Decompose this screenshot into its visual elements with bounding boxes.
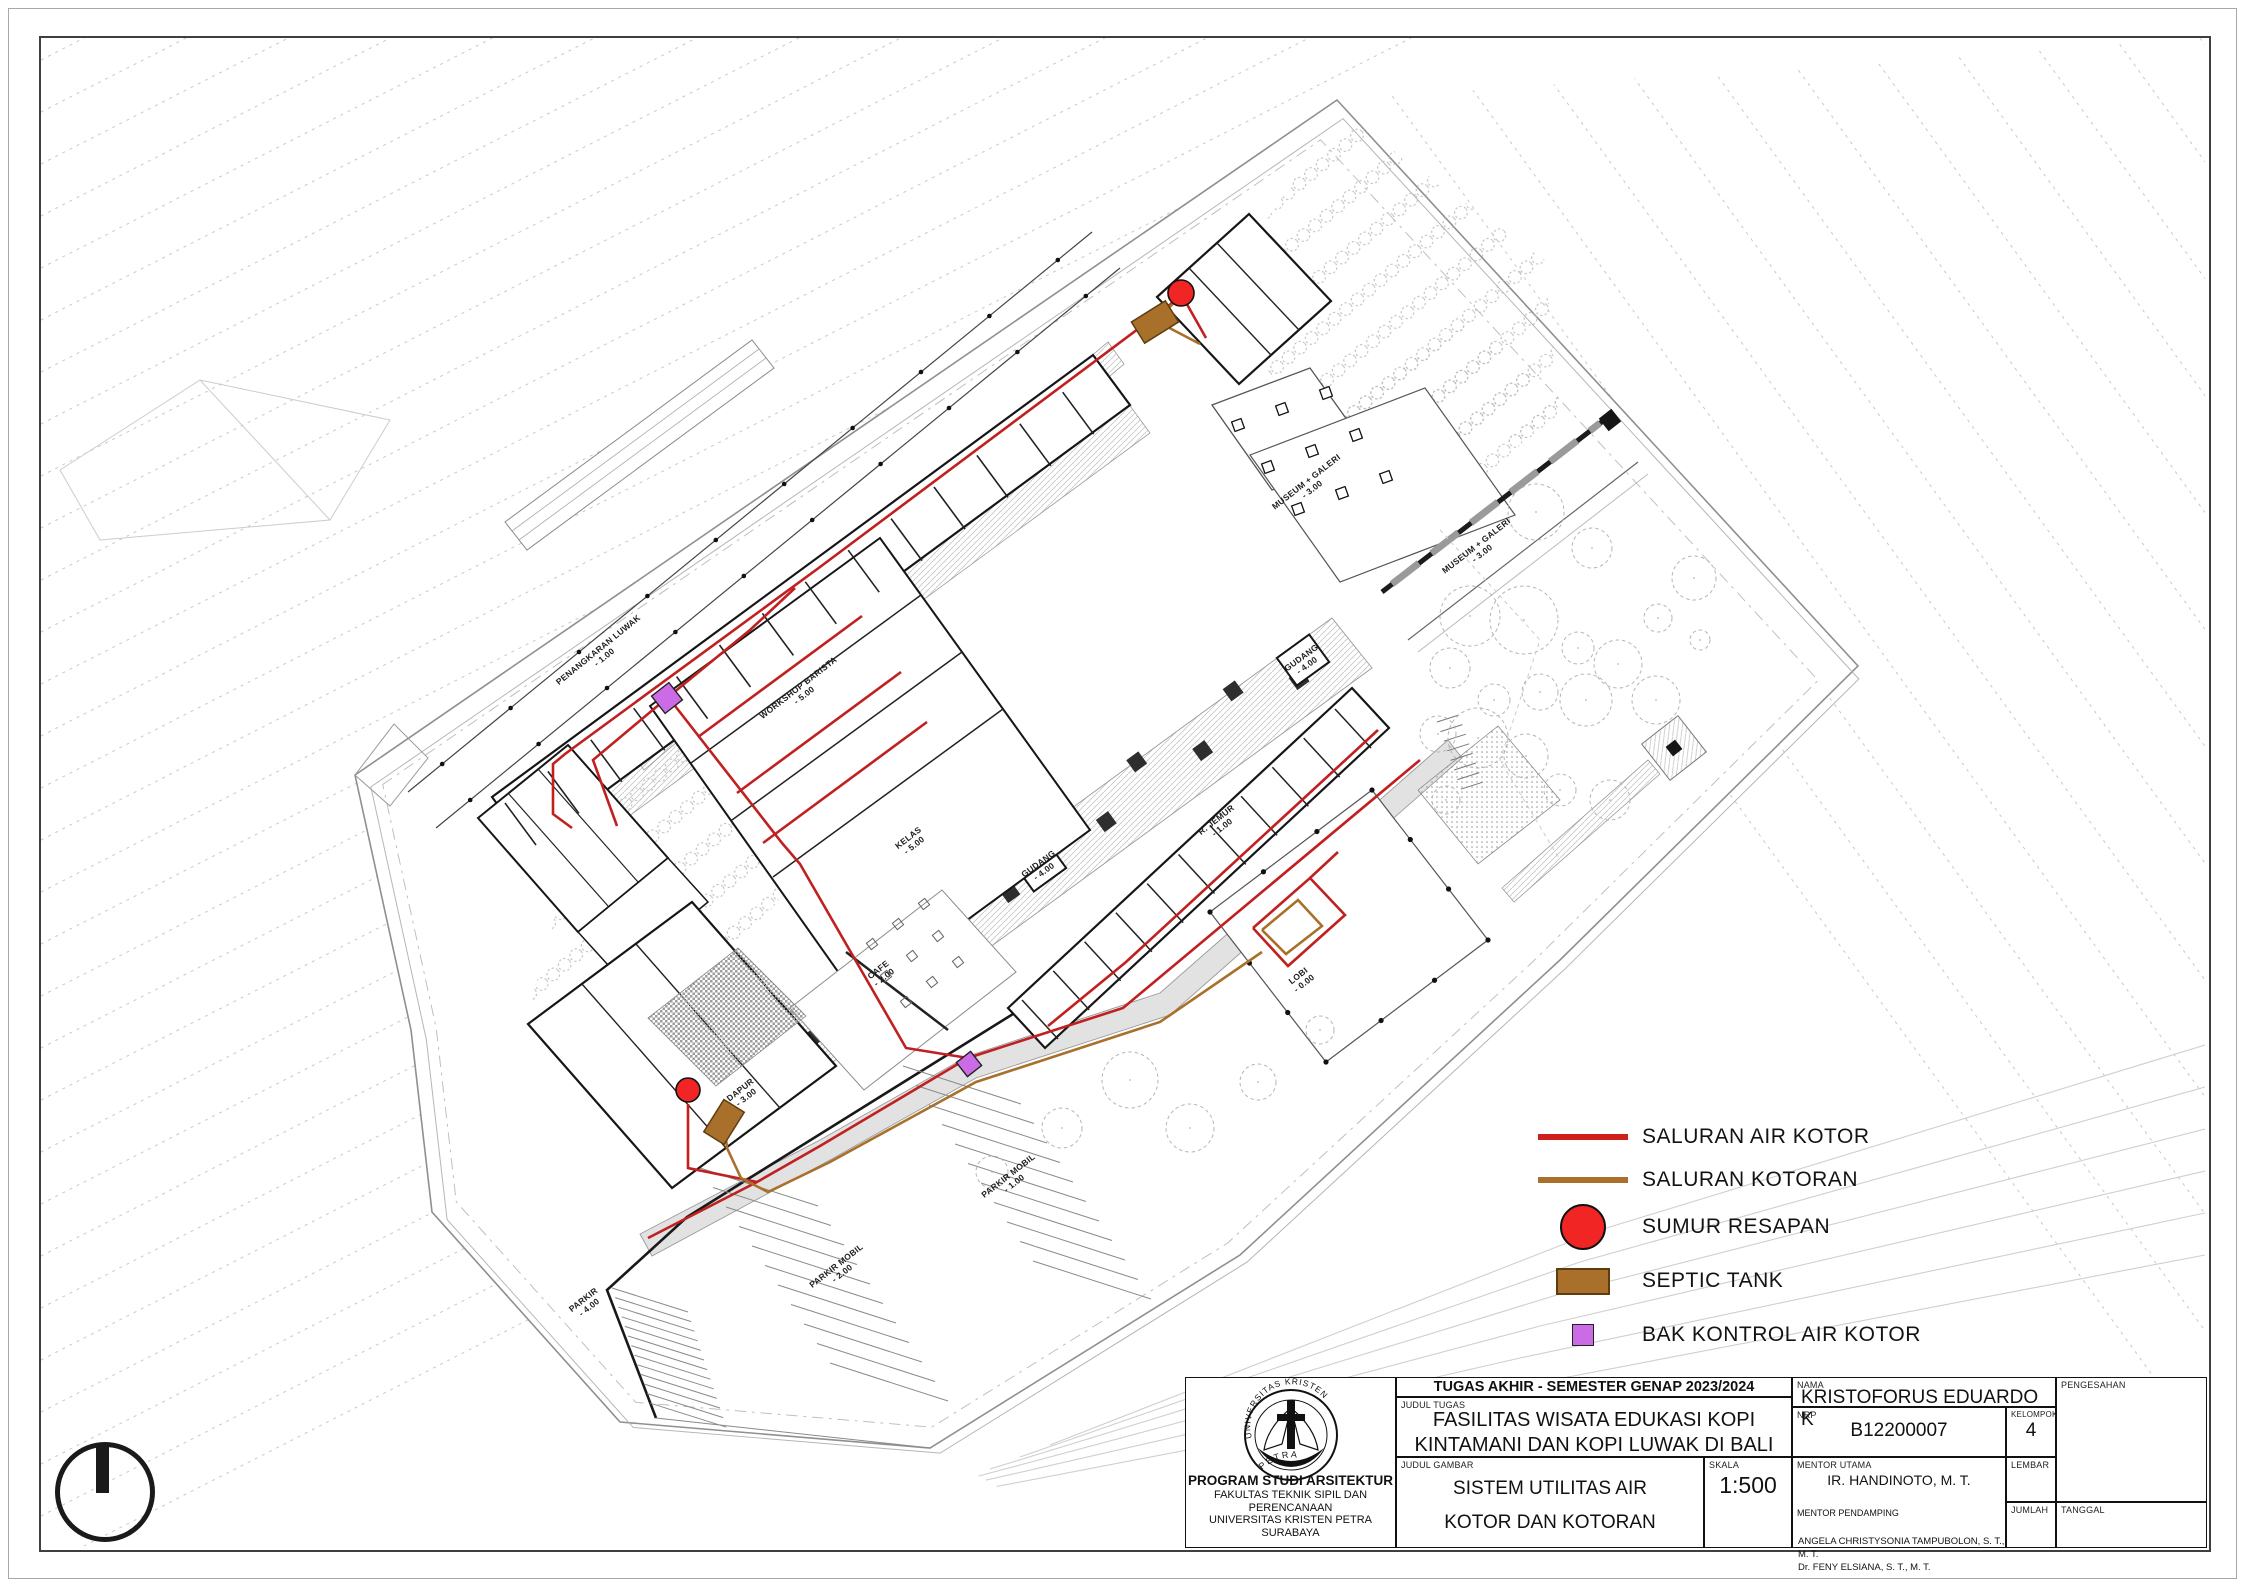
skala-cell: SKALA 1:500: [1704, 1457, 1792, 1548]
judul-tugas-cell: JUDUL TUGAS FASILITAS WISATA EDUKASI KOP…: [1396, 1397, 1792, 1457]
city-name: SURABAYA: [1186, 1527, 1395, 1540]
legend-row: SEPTIC TANK: [1530, 1269, 1783, 1293]
lembar-label: LEMBAR: [2011, 1460, 2049, 1470]
north-arrow: [55, 1442, 155, 1542]
assignment-header-text: TUGAS AKHIR - SEMESTER GENAP 2023/2024: [1434, 1379, 1755, 1395]
tanggal-cell: TANGGAL: [2056, 1502, 2207, 1548]
nama-label: NAMA: [1797, 1380, 1824, 1390]
assignment-header: TUGAS AKHIR - SEMESTER GENAP 2023/2024: [1396, 1377, 1792, 1397]
judul-tugas-line1: FASILITAS WISATA EDUKASI KOPI: [1397, 1408, 1791, 1433]
judul-gambar-cell: JUDUL GAMBAR SISTEM UTILITAS AIR KOTOR D…: [1396, 1457, 1704, 1548]
skala-label: SKALA: [1709, 1460, 1739, 1470]
mentor-pendamping-label: MENTOR PENDAMPING: [1797, 1508, 1899, 1518]
title-block: UNIVERSITAS KRISTEN PETRA PROGRAM STUDI …: [1185, 1377, 2207, 1548]
legend-row: BAK KONTROL AIR KOTOR: [1530, 1324, 1921, 1346]
bak-kontrol-swatch: [1572, 1324, 1594, 1346]
faculty-name: FAKULTAS TEKNIK SIPIL DAN PERENCANAAN: [1186, 1489, 1395, 1514]
kelompok-label: KELOMPOK: [2011, 1410, 2058, 1419]
judul-tugas-label: JUDUL TUGAS: [1401, 1400, 1465, 1410]
petra-logo: UNIVERSITAS KRISTEN PETRA: [1186, 1378, 1397, 1488]
pengesahan-label: PENGESAHAN: [2061, 1380, 2126, 1390]
mentor-utama-value: IR. HANDINOTO, M. T.: [1793, 1472, 2005, 1488]
kelompok-cell: KELOMPOK 4: [2006, 1407, 2056, 1457]
judul-gambar-line2: KOTOR DAN KOTORAN: [1397, 1506, 1703, 1540]
judul-tugas-line2: KINTAMANI DAN KOPI LUWAK DI BALI: [1397, 1433, 1791, 1458]
lembar-cell: LEMBAR: [2006, 1457, 2056, 1502]
saluran-air-kotor-swatch: [1538, 1134, 1628, 1140]
nama-cell: NAMA KRISTOFORUS EDUARDO K: [1792, 1377, 2056, 1407]
sumur-resapan-swatch: [1560, 1204, 1606, 1250]
kelompok-value: 4: [2007, 1420, 2055, 1442]
north-arrow-pointer: [96, 1444, 109, 1493]
legend-label: SEPTIC TANK: [1642, 1269, 1783, 1293]
logo-cell: UNIVERSITAS KRISTEN PETRA PROGRAM STUDI …: [1185, 1377, 1396, 1548]
saluran-kotoran-swatch: [1538, 1177, 1628, 1183]
university-name: UNIVERSITAS KRISTEN PETRA: [1186, 1514, 1395, 1527]
nrp-label: NRP: [1797, 1410, 1817, 1420]
mentor-pendamping-1: ANGELA CHRISTYSONIA TAMPUBOLON, S. T., M…: [1798, 1535, 2005, 1561]
mentor-pendamping-2: Dr. FENY ELSIANA, S. T., M. T.: [1798, 1561, 2005, 1574]
program-name: PROGRAM STUDI ARSITEKTUR: [1186, 1473, 1395, 1488]
legend-label: SALURAN KOTORAN: [1642, 1168, 1858, 1192]
jumlah-cell: JUMLAH: [2006, 1502, 2056, 1548]
mentor-cell: MENTOR UTAMA IR. HANDINOTO, M. T. MENTOR…: [1792, 1457, 2006, 1548]
legend-label: SALURAN AIR KOTOR: [1642, 1125, 1870, 1149]
pengesahan-cell: PENGESAHAN: [2056, 1377, 2207, 1502]
tanggal-label: TANGGAL: [2061, 1505, 2105, 1515]
drawing-sheet: PENANGKARAN LUWAK- 1.00MUSEUM + GALERI- …: [0, 0, 2245, 1587]
legend-row: SUMUR RESAPAN: [1530, 1206, 1830, 1248]
septic-tank-swatch: [1556, 1268, 1610, 1295]
legend-label: SUMUR RESAPAN: [1642, 1215, 1830, 1239]
skala-value: 1:500: [1705, 1472, 1791, 1499]
mentor-utama-label: MENTOR UTAMA: [1797, 1460, 1872, 1470]
nrp-value: B12200007: [1793, 1420, 2005, 1442]
judul-gambar-label: JUDUL GAMBAR: [1401, 1460, 1474, 1470]
legend-row: SALURAN KOTORAN: [1530, 1170, 1858, 1190]
legend-label: BAK KONTROL AIR KOTOR: [1642, 1323, 1921, 1347]
jumlah-label: JUMLAH: [2011, 1505, 2048, 1515]
judul-gambar-line1: SISTEM UTILITAS AIR: [1397, 1472, 1703, 1506]
legend-row: SALURAN AIR KOTOR: [1530, 1127, 1870, 1147]
nrp-cell: NRP B12200007: [1792, 1407, 2006, 1457]
